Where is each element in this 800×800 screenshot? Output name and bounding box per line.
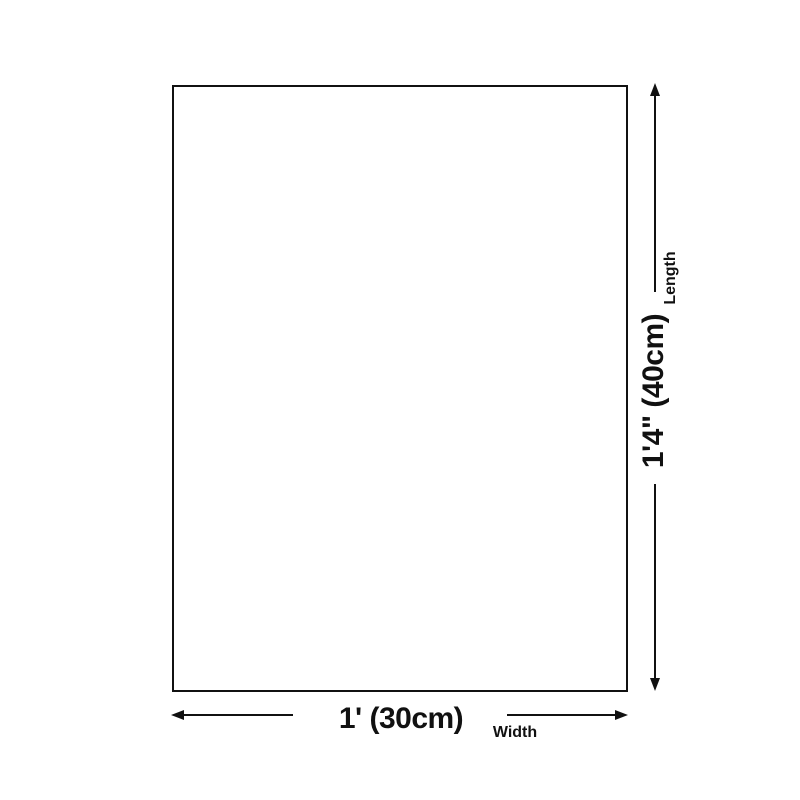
product-outline xyxy=(172,85,628,692)
width-arrow-line-left xyxy=(184,714,293,717)
width-value: 1' (30cm) xyxy=(339,702,463,736)
arrow-up-icon xyxy=(650,83,660,96)
arrow-down-icon xyxy=(650,678,660,691)
width-label: Width xyxy=(493,724,537,742)
length-label: Length xyxy=(662,251,680,304)
width-arrow-line-right xyxy=(507,714,615,717)
size-diagram: 1'4" (40cm) Length 1' (30cm) Width xyxy=(0,0,800,800)
length-arrow-line-top xyxy=(654,96,657,292)
arrow-right-icon xyxy=(615,710,628,720)
arrow-left-icon xyxy=(171,710,184,720)
length-arrow-line-bottom xyxy=(654,484,657,678)
length-value: 1'4" (40cm) xyxy=(637,314,671,468)
